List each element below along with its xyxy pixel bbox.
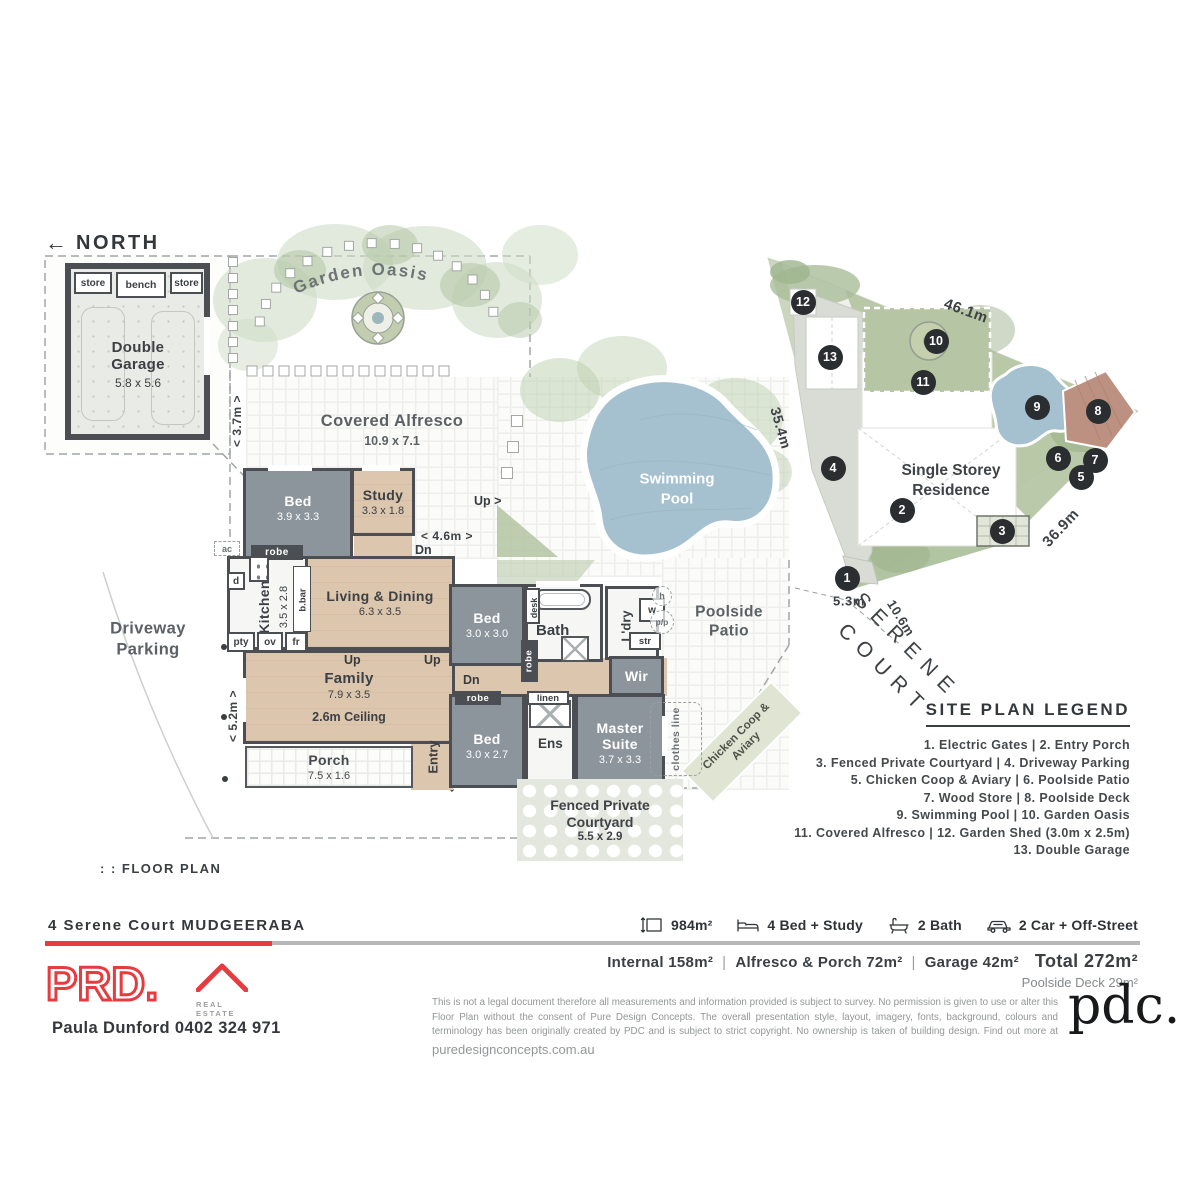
oven-tag: ov bbox=[257, 632, 283, 652]
dishwasher-tag: d bbox=[227, 572, 245, 590]
cooktop bbox=[249, 556, 269, 582]
ceiling-note: 2.6m Ceiling bbox=[312, 710, 386, 724]
prd-real-estate-label: REAL ESTATE bbox=[196, 1000, 266, 1018]
north-arrow-icon: ← bbox=[45, 230, 67, 256]
land-size-icon bbox=[640, 916, 664, 934]
site-marker-8: 8 bbox=[1086, 399, 1111, 424]
residence-label: Single Storey Residence bbox=[891, 461, 1011, 501]
entry-label: Entry bbox=[426, 740, 441, 773]
legend-row: 5. Chicken Coop & Aviary | 6. Poolside P… bbox=[700, 772, 1130, 790]
site-marker-4: 4 bbox=[821, 456, 846, 481]
pantry-tag: pty bbox=[227, 632, 255, 652]
legend-row: 13. Double Garage bbox=[700, 842, 1130, 860]
site-marker-7: 7 bbox=[1083, 448, 1108, 473]
fenced-courtyard: Fenced Private Courtyard 5.5 x 2.9 bbox=[517, 779, 683, 861]
bath-label: Bath bbox=[536, 622, 569, 639]
dn-step-label: Dn bbox=[463, 673, 480, 687]
dim-5-2m: < 5.2m > bbox=[226, 690, 240, 742]
legend-title: SITE PLAN LEGEND bbox=[926, 700, 1130, 727]
pool-pump-tag: p/p bbox=[650, 610, 674, 634]
room-bed-3: Bed 3.0 x 2.7 bbox=[449, 694, 525, 788]
site-plan-legend: SITE PLAN LEGEND 1. Electric Gates | 2. … bbox=[700, 700, 1130, 860]
window bbox=[268, 465, 312, 471]
site-dim-left: 35.4m bbox=[767, 405, 794, 450]
bed-icon bbox=[736, 916, 760, 934]
driveway-label: Driveway Parking bbox=[93, 618, 203, 659]
stat-beds: 4 Bed + Study bbox=[736, 916, 863, 934]
prd-wordmark: PRD. bbox=[46, 957, 158, 1010]
site-marker-1: 1 bbox=[835, 566, 860, 591]
linen-tag: linen bbox=[527, 691, 569, 705]
double-garage: store bench store Double Garage 5.8 x 5.… bbox=[65, 263, 210, 440]
room-living-dining: Living & Dining 6.3 x 3.5 bbox=[305, 556, 455, 650]
legend-row: 7. Wood Store | 8. Poolside Deck bbox=[700, 790, 1130, 808]
up-step-label: Up > bbox=[474, 494, 501, 508]
property-address: 4 Serene Court MUDGEERABA bbox=[48, 917, 306, 934]
pdc-logo: pdc. bbox=[1068, 980, 1180, 1032]
site-marker-6: 6 bbox=[1046, 446, 1071, 471]
disclaimer: This is not a legal document therefore a… bbox=[432, 996, 1058, 1060]
north-indicator: ← NORTH bbox=[45, 230, 160, 256]
stat-land: 984m² bbox=[640, 916, 712, 934]
pdc-website-link[interactable]: puredesignconcepts.com.au bbox=[432, 1042, 595, 1057]
clothes-line: clothes line bbox=[650, 702, 702, 776]
site-marker-11: 11 bbox=[911, 370, 936, 395]
property-stats: 984m² 4 Bed + Study 2 Bath 2 Car + O bbox=[640, 916, 1138, 934]
hose-tag: h bbox=[652, 586, 672, 606]
site-marker-12: 12 bbox=[791, 290, 816, 315]
legend-row: 9. Swimming Pool | 10. Garden Oasis bbox=[700, 807, 1130, 825]
up-step-label: Up bbox=[424, 653, 441, 667]
north-label: NORTH bbox=[76, 232, 160, 255]
poolside-patio-label: Poolside Patio bbox=[683, 603, 775, 642]
garage-store-right: store bbox=[170, 272, 203, 294]
dim-4-6m: < 4.6m > bbox=[421, 529, 473, 543]
breakfast-bar-tag: b.bar bbox=[293, 566, 311, 632]
accent-bar-red bbox=[45, 941, 272, 946]
site-marker-10: 10 bbox=[924, 329, 949, 354]
roof-icon bbox=[196, 960, 248, 992]
desk-tag: desk bbox=[525, 588, 540, 624]
robe-tag: robe bbox=[455, 691, 501, 705]
area-summary: Internal 158m²|Alfresco & Porch 72m²|Gar… bbox=[607, 951, 1138, 972]
floor-plan-layer: ← NORTH store bench store Double Garage … bbox=[0, 0, 1200, 1200]
area-alfresco: Alfresco & Porch 72m² bbox=[735, 954, 902, 971]
area-internal: Internal 158m² bbox=[607, 954, 713, 971]
dim-3-7m: < 3.7m > bbox=[230, 395, 244, 447]
accent-bar-gray bbox=[272, 941, 1140, 945]
bathtub bbox=[533, 589, 591, 610]
stat-cars: 2 Car + Off-Street bbox=[986, 916, 1138, 934]
garage-label: Double Garage 5.8 x 5.6 bbox=[83, 339, 193, 390]
bath-icon bbox=[887, 916, 911, 934]
site-marker-2: 2 bbox=[890, 498, 915, 523]
room-wir: Wir bbox=[609, 656, 664, 696]
shower bbox=[561, 636, 589, 662]
site-dim-frontage: 5.3m bbox=[833, 594, 865, 609]
area-garage: Garage 42m² bbox=[925, 954, 1019, 971]
garage-store-left: store bbox=[74, 272, 112, 294]
ac-unit-tag: ac bbox=[214, 541, 240, 556]
kitchen-label: Kitchen 3.5 x 2.8 bbox=[256, 580, 292, 633]
window bbox=[240, 678, 246, 722]
window bbox=[362, 465, 400, 471]
car-icon bbox=[986, 916, 1012, 934]
ens-label: Ens bbox=[538, 736, 563, 751]
prd-logo: PRD. REAL ESTATE bbox=[46, 960, 266, 1016]
room-bed-2: Bed 3.0 x 3.0 bbox=[449, 584, 525, 666]
site-marker-13: 13 bbox=[818, 345, 843, 370]
up-step-label: Up bbox=[344, 653, 361, 667]
floor-plan-caption: : : FLOOR PLAN bbox=[100, 861, 221, 876]
legend-row: 1. Electric Gates | 2. Entry Porch bbox=[700, 737, 1130, 755]
site-marker-9: 9 bbox=[1025, 395, 1050, 420]
legend-row: 11. Covered Alfresco | 12. Garden Shed (… bbox=[700, 825, 1130, 843]
window bbox=[536, 581, 580, 587]
dn-step-label: Dn bbox=[415, 543, 432, 557]
area-total: Total 272m² bbox=[1019, 951, 1138, 971]
room-study: Study 3.3 x 1.8 bbox=[351, 468, 415, 536]
garage-bench: bench bbox=[116, 272, 166, 298]
pool-label: Swimming Pool bbox=[622, 470, 732, 509]
legend-rows: 1. Electric Gates | 2. Entry Porch3. Fen… bbox=[700, 737, 1130, 860]
floor-plan-document: Garden Oasis bbox=[0, 0, 1200, 1200]
site-dim-top: 46.1m bbox=[942, 295, 991, 327]
stat-baths: 2 Bath bbox=[887, 916, 962, 934]
storage-tag: str bbox=[629, 632, 661, 650]
porch: Porch 7.5 x 1.6 bbox=[245, 746, 413, 788]
alfresco-label: Covered Alfresco 10.9 x 7.1 bbox=[282, 411, 502, 449]
site-marker-3: 3 bbox=[990, 519, 1015, 544]
legend-row: 3. Fenced Private Courtyard | 4. Drivewa… bbox=[700, 755, 1130, 773]
site-dim-right: 36.9m bbox=[1039, 506, 1082, 551]
agent-contact: Paula Dunford 0402 324 971 bbox=[52, 1019, 281, 1038]
robe-tag: robe bbox=[521, 640, 538, 682]
garage-door-opening bbox=[204, 317, 210, 375]
fridge-tag: fr bbox=[285, 632, 307, 652]
